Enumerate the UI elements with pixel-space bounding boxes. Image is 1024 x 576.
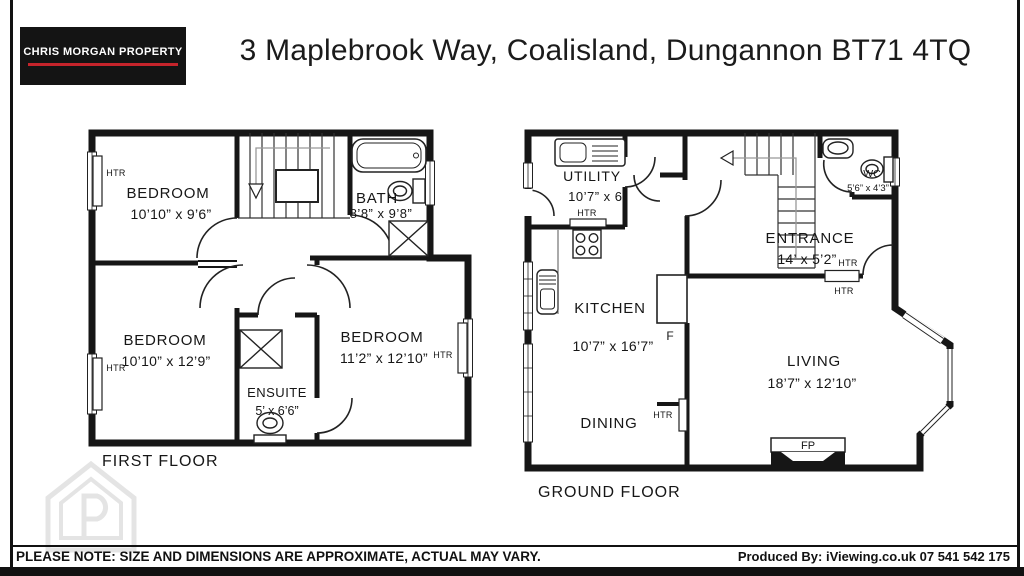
first-floor-label: FIRST FLOOR bbox=[102, 453, 219, 470]
bay-window bbox=[903, 313, 955, 435]
ground-floor-stairs bbox=[721, 133, 815, 268]
stairs-down-arrow-icon bbox=[249, 184, 263, 198]
page-title: 3 Maplebrook Way, Coalisland, Dungannon … bbox=[195, 34, 1016, 68]
bedroom3-htr-label: HTR bbox=[433, 350, 453, 360]
first-floor-stairs bbox=[238, 133, 350, 218]
utility-dims: 10’7” x 6’ bbox=[568, 189, 626, 204]
bedroom1-dims: 10’10” x 9’6” bbox=[131, 206, 212, 222]
logo-accent-bar bbox=[28, 63, 178, 67]
bedroom2-dims: 10’10” x 12’9” bbox=[121, 353, 210, 369]
first-floor-door-arcs bbox=[197, 215, 393, 433]
first-floor-plan: BEDROOM 10’10” x 9’6” BATH 8’8” x 9’8” B… bbox=[80, 118, 480, 478]
ensuite-label: ENSUITE bbox=[247, 385, 307, 400]
dining-htr-label: HTR bbox=[653, 410, 673, 420]
wc-dims: 5’6” x 4’3” bbox=[847, 183, 889, 194]
bedroom2-htr-label: HTR bbox=[106, 363, 126, 373]
entrance-dims: 14’ x 5’2” bbox=[777, 251, 836, 267]
fridge-label: F bbox=[666, 329, 673, 343]
dining-label: DINING bbox=[580, 415, 637, 432]
utility-label: UTILITY bbox=[563, 168, 621, 184]
living-dims: 18’7” x 12’10” bbox=[767, 375, 856, 391]
ensuite-shower-icon bbox=[240, 330, 282, 368]
bath-dims: 8’8” x 9’8” bbox=[350, 206, 413, 221]
utility-sink-icon bbox=[555, 139, 625, 166]
wc-sink-icon bbox=[823, 139, 853, 158]
ground-floor-plan: UTILITY 10’7” x 6’ HTR WC 5’6” x 4’3” EN… bbox=[510, 118, 970, 508]
right-border bbox=[1017, 0, 1020, 576]
bath-shower-icon bbox=[389, 221, 428, 256]
entrance-label: ENTRANCE bbox=[766, 230, 855, 247]
hob-icon bbox=[573, 230, 601, 258]
bathtub-icon bbox=[352, 139, 426, 172]
ensuite-dims: 5’ x 6’6” bbox=[255, 404, 298, 418]
wc-label: WC bbox=[863, 168, 881, 180]
bedroom2-label: BEDROOM bbox=[123, 332, 206, 349]
ground-floor-label: GROUND FLOOR bbox=[538, 484, 681, 501]
bath-label: BATH bbox=[356, 190, 398, 207]
produced-by: Produced By: iViewing.co.uk 07 541 542 1… bbox=[738, 549, 1010, 564]
kitchen-label: KITCHEN bbox=[574, 300, 645, 317]
living-htr-label: HTR bbox=[834, 286, 854, 296]
fridge-icon bbox=[657, 275, 687, 323]
left-border bbox=[10, 0, 13, 576]
bedroom1-htr-label: HTR bbox=[106, 168, 126, 178]
bedroom3-dims: 11’2” x 12’10” bbox=[340, 350, 428, 366]
kitchen-dims: 10’7” x 16’7” bbox=[573, 338, 654, 354]
agency-logo-text: CHRIS MORGAN PROPERTY bbox=[23, 46, 182, 58]
bottom-bar bbox=[0, 567, 1024, 576]
stairs-up-arrow-icon bbox=[721, 151, 733, 165]
living-label: LIVING bbox=[787, 353, 841, 370]
footer-separator bbox=[10, 545, 1020, 547]
kitchen-sink-icon bbox=[537, 270, 558, 314]
disclaimer-note: PLEASE NOTE: SIZE AND DIMENSIONS ARE APP… bbox=[16, 549, 541, 564]
fireplace-label: FP bbox=[801, 440, 815, 452]
agency-logo: CHRIS MORGAN PROPERTY bbox=[20, 27, 186, 85]
entrance-htr-label: HTR bbox=[838, 258, 858, 268]
bedroom3-label: BEDROOM bbox=[340, 329, 423, 346]
utility-htr-label: HTR bbox=[577, 208, 597, 218]
bedroom1-label: BEDROOM bbox=[126, 185, 209, 202]
floorplan-page: CHRIS MORGAN PROPERTY 3 Maplebrook Way, … bbox=[0, 0, 1024, 576]
